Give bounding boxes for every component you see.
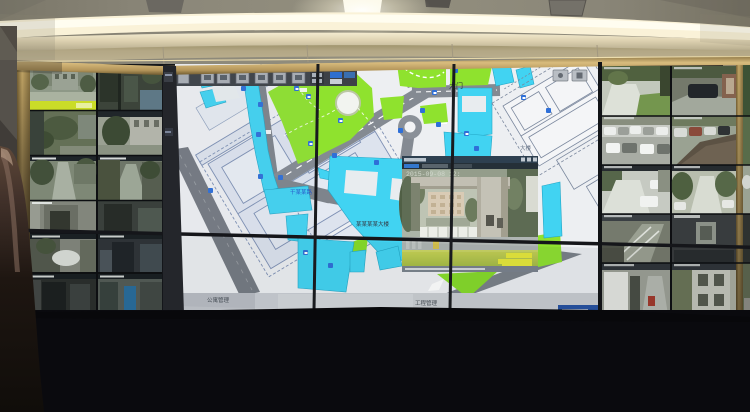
svg-text:大楼: 大楼 <box>520 144 532 152</box>
svg-text:某某某某大楼: 某某某某大楼 <box>356 220 390 228</box>
svg-text:大门: 大门 <box>449 81 463 90</box>
